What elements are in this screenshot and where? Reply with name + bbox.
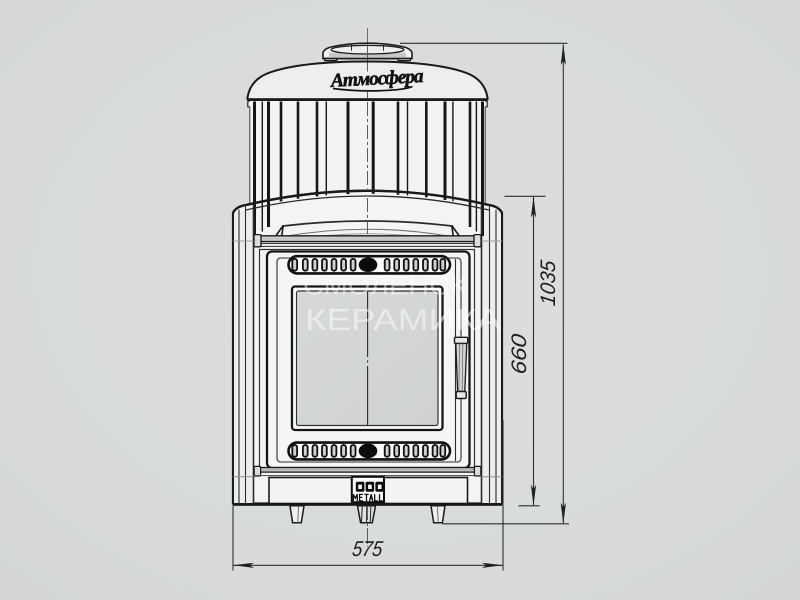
svg-text:1035: 1035 [537,259,560,307]
svg-text:660: 660 [508,332,531,376]
svg-text:575: 575 [351,536,385,561]
svg-text:КЕРАМИКА: КЕРАМИКА [305,302,501,337]
svg-text:СМОЛЕНСК: СМОЛЕНСК [303,271,467,301]
